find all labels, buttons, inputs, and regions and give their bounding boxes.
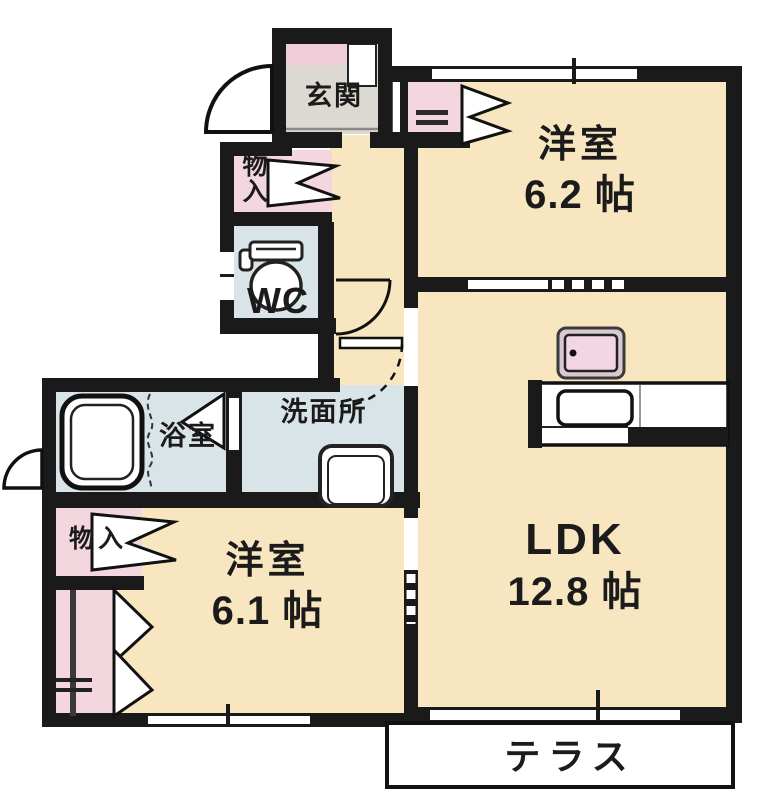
- bedroom-b-label: 洋室 6.1 帖: [140, 538, 395, 636]
- storage-upper-label: 物入: [240, 154, 270, 205]
- ldk-door-leaf: [340, 338, 402, 348]
- bath-window-arc: [4, 450, 42, 488]
- ldk-name: LDK: [445, 512, 705, 567]
- bathtub-icon: [62, 396, 142, 488]
- bedroom-a-label: 洋室 6.2 帖: [455, 122, 705, 220]
- window-tick-bedroom-b: [226, 704, 230, 727]
- wall-storage-toilet-divider: [220, 212, 332, 226]
- terrace-label: テラス: [430, 734, 710, 779]
- bedroom-b-name: 洋室: [140, 538, 395, 586]
- floor-plan: 玄関 洋室 6.2 帖 LDK 12.8 帖 洋室 6.1 帖 WC 浴室 洗面…: [0, 0, 776, 800]
- door-gap-bedroom-b: [404, 518, 418, 570]
- kitchen-sink-icon: [558, 391, 632, 425]
- entrance-door-arc: [206, 66, 272, 132]
- toilet-label: WC: [236, 278, 320, 323]
- entrance-label: 玄関: [288, 80, 380, 114]
- wall-left-lower: [42, 378, 56, 727]
- bedroom-a-name: 洋室: [455, 122, 705, 170]
- wall-hall-left-low: [318, 330, 334, 390]
- storage-lower-label: 物入: [58, 524, 138, 555]
- bath-label: 浴室: [142, 420, 234, 454]
- wall-bedroom-a-west: [404, 148, 418, 292]
- wall-entrance-left: [272, 28, 286, 148]
- closet-strip-divider: [70, 590, 76, 716]
- wall-entrance-right: [378, 28, 392, 140]
- kitchen-counter: [528, 380, 728, 448]
- window-tick-top: [572, 58, 576, 84]
- shoe-cabinet: [286, 44, 350, 65]
- ldk-size: 12.8 帖: [445, 567, 705, 617]
- wall-left-upper: [220, 142, 234, 334]
- wall-toilet-right: [318, 222, 334, 330]
- washroom-label: 洗面所: [248, 396, 400, 430]
- wall-ldk-west-upper: [404, 292, 418, 310]
- bedroom-a-size: 6.2 帖: [455, 170, 705, 220]
- wall-entrance-top: [272, 28, 392, 44]
- window-tick-ldk: [596, 690, 600, 723]
- door-gap-hall-ldk: [404, 308, 418, 386]
- washing-machine-icon: [320, 446, 392, 506]
- bedroom-b-size: 6.1 帖: [140, 586, 395, 636]
- wall-storage-lower-bottom: [42, 576, 144, 590]
- stove-icon: [558, 328, 624, 378]
- wall-bath-top: [42, 378, 340, 392]
- wall-closet-divider: [400, 80, 408, 142]
- ldk-label: LDK 12.8 帖: [445, 512, 705, 617]
- closet-strip-floor: [50, 582, 116, 716]
